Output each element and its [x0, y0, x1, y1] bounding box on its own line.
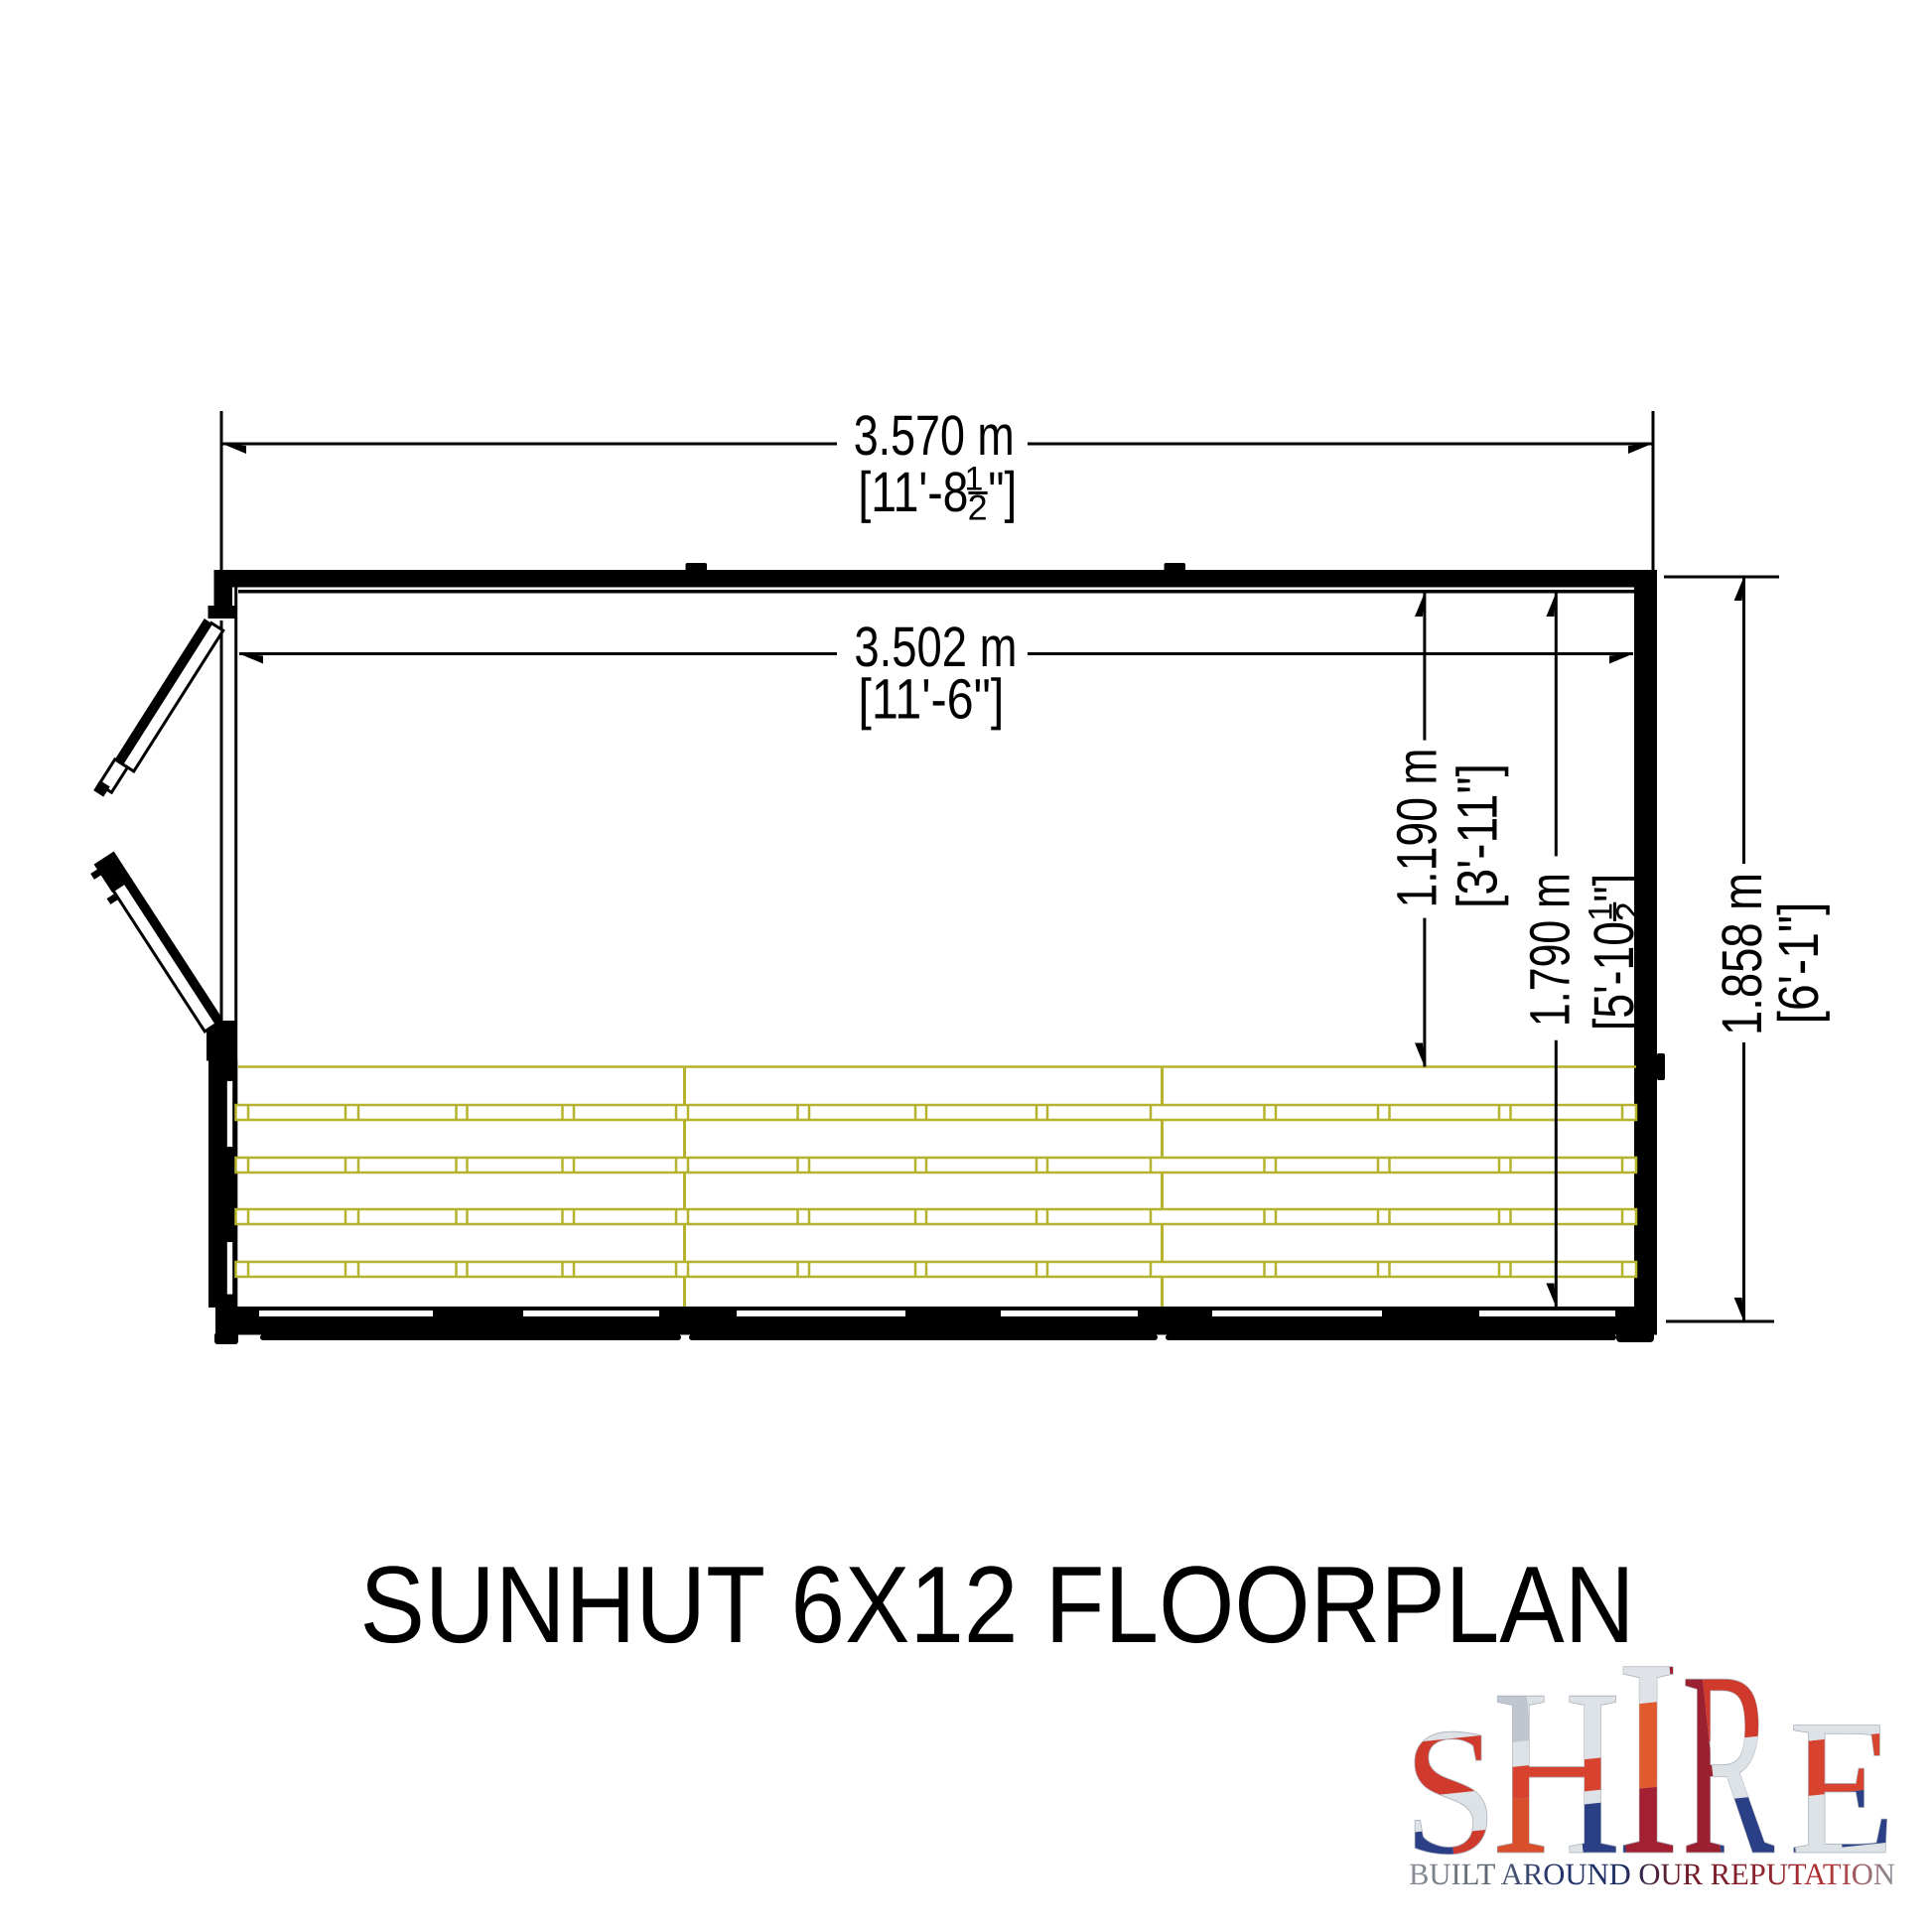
svg-text:1.190 m: 1.190 m: [1386, 749, 1449, 908]
svg-text:2: 2: [968, 486, 988, 527]
svg-text:"]: "]: [1583, 874, 1646, 902]
svg-text:[5'-10: [5'-10: [1583, 921, 1646, 1031]
svg-text:[11'-6"]: [11'-6"]: [858, 668, 1004, 732]
svg-text:1.790 m: 1.790 m: [1519, 873, 1583, 1027]
svg-text:SUNHUT 6X12 FLOORPLAN: SUNHUT 6X12 FLOORPLAN: [360, 1544, 1635, 1666]
svg-text:[6'-1"]: [6'-1"]: [1767, 902, 1831, 1025]
svg-text:"]: "]: [988, 461, 1017, 524]
svg-text:BUILT AROUND OUR REPUTATION: BUILT AROUND OUR REPUTATION: [1409, 1857, 1895, 1891]
svg-text:[3'-11"]: [3'-11"]: [1447, 763, 1510, 908]
svg-text:3.570 m: 3.570 m: [854, 404, 1015, 468]
svg-text:[11'-8: [11'-8: [858, 461, 968, 524]
svg-text:2: 2: [1608, 901, 1649, 921]
svg-text:1.858 m: 1.858 m: [1711, 873, 1774, 1035]
